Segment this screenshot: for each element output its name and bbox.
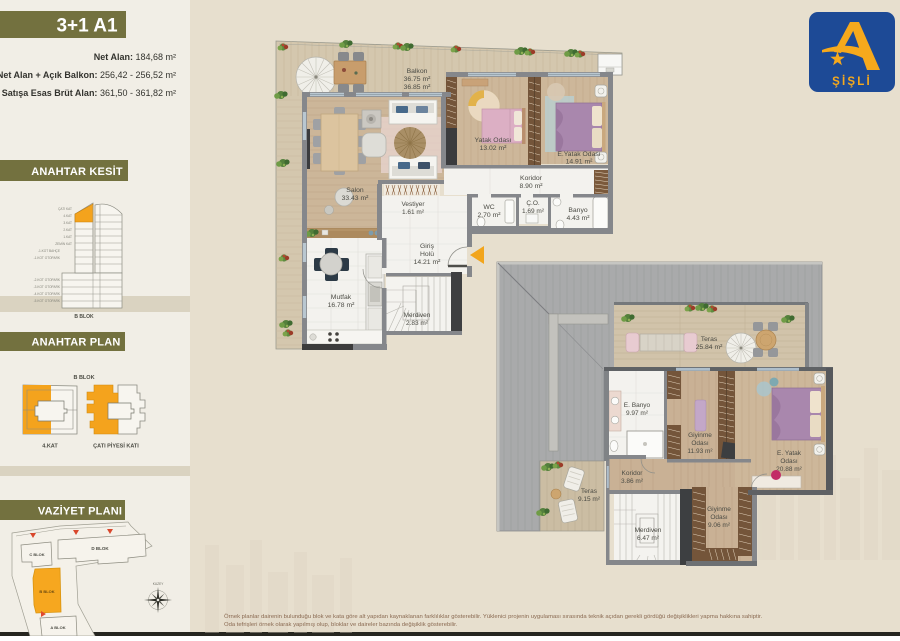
svg-text:Odası: Odası [691,440,709,447]
svg-text:C BLOK: C BLOK [29,552,44,557]
svg-text:Satışa Esas Brüt Alan: 361,50: Satışa Esas Brüt Alan: 361,50 - 361,82 m… [2,88,176,98]
svg-text:8.90 m²: 8.90 m² [519,183,543,190]
svg-text:Koridor: Koridor [622,470,644,477]
svg-text:3.86 m²: 3.86 m² [621,478,644,485]
svg-text:14.91 m²: 14.91 m² [566,159,594,166]
svg-text:Mutfak: Mutfak [331,294,352,301]
svg-text:4.43 m²: 4.43 m² [566,215,590,222]
svg-text:Giyinme: Giyinme [688,432,712,439]
svg-text:-1.KOT BAHÇE: -1.KOT BAHÇE [38,249,60,253]
svg-text:Odası: Odası [710,514,728,521]
svg-text:36.85 m²: 36.85 m² [404,84,432,91]
svg-text:A BLOK: A BLOK [50,625,65,630]
svg-text:B BLOK: B BLOK [39,589,54,594]
svg-text:4.KAT: 4.KAT [63,214,72,218]
svg-text:B BLOK: B BLOK [73,375,94,381]
svg-text:25.84 m²: 25.84 m² [696,344,724,351]
svg-text:3+1 A1: 3+1 A1 [56,16,118,37]
svg-text:Salon: Salon [346,187,364,194]
svg-text:Oda tefrişleri örnek olarak ya: Oda tefrişleri örnek olarak yapılmış olu… [224,622,458,628]
svg-text:ŞİŞLİ: ŞİŞLİ [832,75,872,88]
svg-text:-4.KOT OTOPARK: -4.KOT OTOPARK [34,292,61,296]
svg-text:ÇATI KAT: ÇATI KAT [58,207,72,211]
svg-text:Koridor: Koridor [520,175,543,182]
svg-text:D BLOK: D BLOK [91,546,109,551]
svg-text:-3.KOT OTOPARK: -3.KOT OTOPARK [34,285,61,289]
svg-text:VAZİYET PLANI: VAZİYET PLANI [38,505,122,518]
svg-text:Ç.O.: Ç.O. [526,200,540,207]
svg-text:Net Alan: 184,68 m²: Net Alan: 184,68 m² [94,52,176,62]
svg-text:14.21 m²: 14.21 m² [414,259,442,266]
svg-text:9.97 m²: 9.97 m² [626,410,649,417]
svg-text:1.61 m²: 1.61 m² [402,209,425,216]
svg-text:Yatak Odası: Yatak Odası [475,137,512,144]
svg-text:Banyo: Banyo [568,207,587,214]
svg-text:9.15 m²: 9.15 m² [578,496,601,503]
svg-text:6.47 m²: 6.47 m² [637,535,660,542]
svg-text:Holü: Holü [420,251,434,258]
svg-text:ANAHTAR PLAN: ANAHTAR PLAN [32,337,121,349]
svg-text:E. Banyo: E. Banyo [624,402,651,409]
svg-text:ÇATI PİYESİ KATI: ÇATI PİYESİ KATI [93,443,139,450]
svg-text:ZEMİN KAT: ZEMİN KAT [55,241,72,246]
svg-text:-2.KOT OTOPARK: -2.KOT OTOPARK [34,278,61,282]
svg-text:33.43 m²: 33.43 m² [342,195,370,202]
svg-text:Giriş: Giriş [420,243,435,250]
svg-text:3.KAT: 3.KAT [63,221,72,225]
svg-text:E. Yatak: E. Yatak [777,450,802,457]
svg-text:13.02 m²: 13.02 m² [480,145,508,152]
svg-text:1.KAT: 1.KAT [63,235,72,239]
svg-text:Vestiyer: Vestiyer [401,201,425,208]
svg-text:36.75 m²: 36.75 m² [404,76,432,83]
svg-text:Merdiven: Merdiven [635,527,662,534]
svg-text:E.Yatak Odası: E.Yatak Odası [557,151,600,158]
svg-text:9.06 m²: 9.06 m² [708,522,731,529]
svg-text:WC: WC [483,204,494,211]
svg-text:16.78 m²: 16.78 m² [328,302,356,309]
svg-text:-1.KOT OTOPARK: -1.KOT OTOPARK [34,256,61,260]
svg-text:11.93 m²: 11.93 m² [687,448,713,455]
svg-text:Merdiven: Merdiven [404,312,431,319]
svg-text:KUZEY: KUZEY [153,582,165,586]
svg-text:Teras: Teras [581,488,598,495]
svg-text:2.KAT: 2.KAT [63,228,72,232]
svg-text:Örnek planlar dairenin bulundu: Örnek planlar dairenin bulunduğu blok ve… [224,613,763,620]
svg-text:Balkon: Balkon [407,68,428,75]
svg-text:B BLOK: B BLOK [74,314,94,320]
svg-text:Giyinme: Giyinme [707,506,731,513]
svg-text:Teras: Teras [701,336,718,343]
svg-text:Net Alan + Açık Balkon: 256,42: Net Alan + Açık Balkon: 256,42 - 256,52 … [0,70,176,80]
svg-text:2.83 m²: 2.83 m² [406,320,429,327]
svg-text:4.KAT: 4.KAT [42,444,58,450]
svg-text:ANAHTAR KESİT: ANAHTAR KESİT [31,165,123,178]
svg-text:20.88 m²: 20.88 m² [776,466,802,473]
svg-text:-5.KOT OTOPARK: -5.KOT OTOPARK [34,299,61,303]
